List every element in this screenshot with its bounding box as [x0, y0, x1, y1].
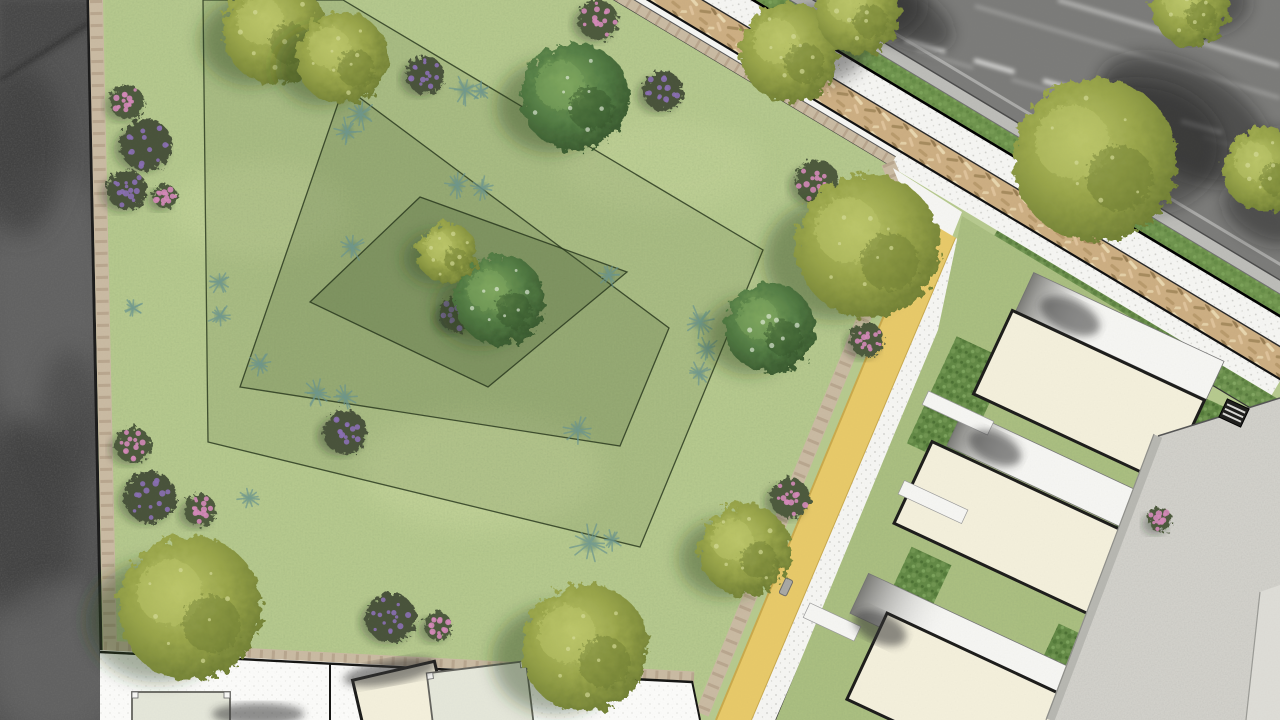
site-plan-svg: [0, 0, 1280, 720]
site-plan-canvas: [0, 0, 1280, 720]
global-grain-overlay: [0, 0, 1280, 720]
